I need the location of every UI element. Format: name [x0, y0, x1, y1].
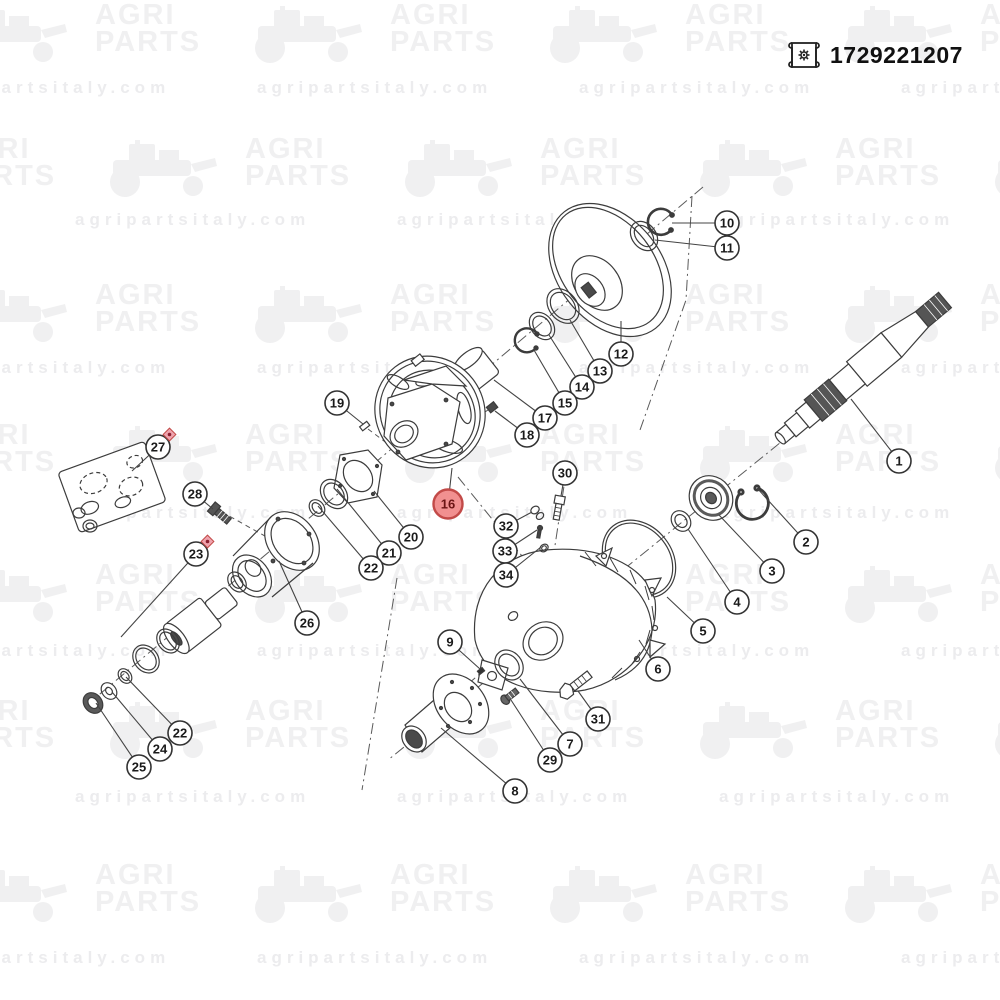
callout-number: 16 [441, 497, 455, 512]
part-22-oring [306, 497, 328, 520]
callout-number: 33 [498, 544, 512, 559]
callout-number: 3 [768, 564, 775, 579]
callout-32[interactable]: 32 [494, 514, 518, 538]
callout-number: 26 [300, 616, 314, 631]
callout-11[interactable]: 11 [715, 236, 739, 260]
part-spacer-cylinder [159, 581, 243, 657]
callout-number: 23 [189, 547, 203, 562]
part-3-bearing [680, 467, 741, 529]
callout-9[interactable]: 9 [438, 630, 462, 654]
part-20-gasket [334, 450, 382, 503]
callout-number: 24 [153, 742, 168, 757]
part-number: 1729221207 [830, 42, 963, 69]
callout-number: 32 [499, 519, 513, 534]
callout-balloons: 1234567891011121314151617181920212223242… [127, 211, 911, 803]
callout-15[interactable]: 15 [553, 391, 577, 415]
callout-22[interactable]: 22 [359, 556, 383, 580]
callout-number: 14 [575, 380, 590, 395]
callout-number: 1 [895, 454, 902, 469]
frame-left-line [362, 578, 397, 790]
callout-16-selected[interactable]: 16 [434, 490, 463, 519]
callout-8[interactable]: 8 [503, 779, 527, 803]
callout-number: 20 [404, 530, 418, 545]
callout-1[interactable]: 1 [887, 449, 911, 473]
callout-number: 22 [173, 726, 187, 741]
callout-19[interactable]: 19 [325, 391, 349, 415]
callout-number: 7 [566, 737, 573, 752]
callout-number: 21 [382, 546, 396, 561]
callout-number: 2 [802, 535, 809, 550]
callout-number: 29 [543, 753, 557, 768]
part-2-snap-ring [736, 486, 768, 520]
callout-number: 8 [511, 784, 518, 799]
exploded-parts-diagram: 1234567891011121314151617181920212223242… [0, 0, 1000, 1000]
callout-number: 15 [558, 396, 572, 411]
callout-26[interactable]: 26 [295, 611, 319, 635]
part-15-snap-ring [515, 328, 539, 352]
callout-number: 18 [520, 428, 534, 443]
callout-number: 22 [364, 561, 378, 576]
callout-3[interactable]: 3 [760, 559, 784, 583]
part-4-ring [667, 507, 695, 535]
callout-17[interactable]: 17 [533, 406, 557, 430]
callout-number: 6 [654, 662, 661, 677]
callout-10[interactable]: 10 [715, 211, 739, 235]
callout-number: 25 [132, 760, 146, 775]
callout-23[interactable]: 23 [184, 535, 214, 566]
callout-number: 31 [591, 712, 605, 727]
callout-number: 11 [720, 241, 734, 256]
callout-6[interactable]: 6 [646, 657, 670, 681]
part-33-grease-fitting [536, 525, 543, 538]
callout-4[interactable]: 4 [725, 590, 749, 614]
leader-line-8 [441, 728, 515, 791]
part-28-bolt [207, 502, 232, 526]
callout-2[interactable]: 2 [794, 530, 818, 554]
part-header: 1729221207 [786, 40, 963, 70]
callout-18[interactable]: 18 [515, 423, 539, 447]
part-10-snap-ring [648, 209, 674, 235]
callout-number: 19 [330, 396, 344, 411]
callout-29[interactable]: 29 [538, 748, 562, 772]
callout-number: 30 [558, 466, 572, 481]
callout-5[interactable]: 5 [691, 619, 715, 643]
callout-28[interactable]: 28 [183, 482, 207, 506]
callout-7[interactable]: 7 [558, 732, 582, 756]
callout-number: 17 [538, 411, 552, 426]
callout-number: 10 [720, 216, 734, 231]
callout-27[interactable]: 27 [146, 428, 176, 459]
callout-34[interactable]: 34 [494, 563, 518, 587]
callout-22[interactable]: 22 [168, 721, 192, 745]
part-26-bell-flange [224, 501, 330, 605]
callout-31[interactable]: 31 [586, 707, 610, 731]
callout-number: 12 [614, 347, 628, 362]
callout-number: 9 [446, 635, 453, 650]
parts-layer [58, 180, 955, 757]
part-1-shaft [768, 288, 956, 453]
drawing-scroll-icon [786, 40, 822, 70]
callout-33[interactable]: 33 [493, 539, 517, 563]
leader-line-4 [688, 529, 737, 602]
callout-12[interactable]: 12 [609, 342, 633, 366]
part-30-bolt [551, 495, 565, 520]
callout-number: 13 [593, 364, 607, 379]
callout-number: 27 [151, 440, 165, 455]
callout-24[interactable]: 24 [148, 737, 172, 761]
callout-number: 4 [733, 595, 741, 610]
callout-number: 28 [188, 487, 202, 502]
callout-25[interactable]: 25 [127, 755, 151, 779]
callout-number: 5 [699, 624, 706, 639]
callout-30[interactable]: 30 [553, 461, 577, 485]
callout-number: 34 [499, 568, 514, 583]
callout-20[interactable]: 20 [399, 525, 423, 549]
